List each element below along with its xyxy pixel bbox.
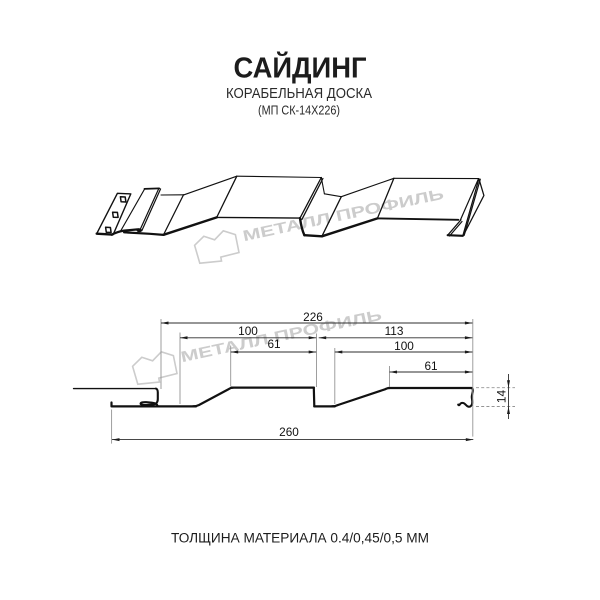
svg-text:226: 226 [303,310,323,324]
svg-text:ТОЛЩИНА МАТЕРИАЛА 0.4/0,45/0,5: ТОЛЩИНА МАТЕРИАЛА 0.4/0,45/0,5 ММ [171,531,429,547]
svg-text:14: 14 [495,390,509,404]
svg-text:100: 100 [394,339,414,353]
svg-text:(МП СК-14Х226): (МП СК-14Х226) [258,104,340,118]
svg-text:КОРАБЕЛЬНАЯ ДОСКА: КОРАБЕЛЬНАЯ ДОСКА [226,86,372,102]
svg-text:61: 61 [267,337,280,351]
svg-text:113: 113 [385,324,404,338]
svg-text:100: 100 [238,324,258,338]
svg-text:260: 260 [279,425,299,439]
svg-text:САЙДИНГ: САЙДИНГ [234,52,367,85]
svg-text:61: 61 [424,359,437,373]
